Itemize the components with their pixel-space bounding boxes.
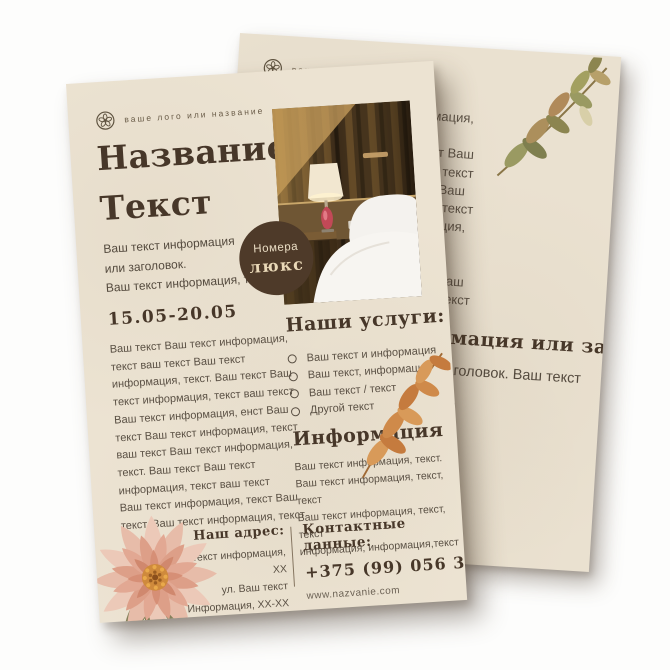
date-range: 15.05-20.05 (107, 302, 238, 330)
bullet-circle-icon (291, 407, 301, 417)
dahlia-flower (75, 497, 236, 623)
orange-leaf-branch (345, 342, 457, 486)
bullet-circle-icon (290, 389, 300, 399)
contacts-block: Контактные данные: +375 (99) 056 34 56 w… (302, 512, 467, 602)
bullet-circle-icon (287, 354, 297, 364)
olive-leaf-branch (489, 51, 615, 190)
flyer-title: Название Текст (95, 122, 292, 233)
phone-number: +375 (99) 056 34 56 (305, 553, 466, 582)
bullet-circle-icon (289, 372, 299, 382)
badge-line-2: люкс (249, 254, 305, 276)
website-url: www.nazvanie.com (306, 581, 466, 602)
logo-label: ваше лого или название (124, 106, 265, 125)
flyer-front: ваше лого или название Название Текст Ва… (66, 61, 467, 623)
footer-divider (290, 527, 295, 587)
flyer-mockup-stage: ваше лого или название Ваш текст Ваш тек… (0, 0, 670, 670)
badge-line-1: Номера (253, 240, 298, 255)
floral-emblem-icon (94, 109, 117, 132)
services-heading: Наши услуги: (285, 305, 446, 337)
